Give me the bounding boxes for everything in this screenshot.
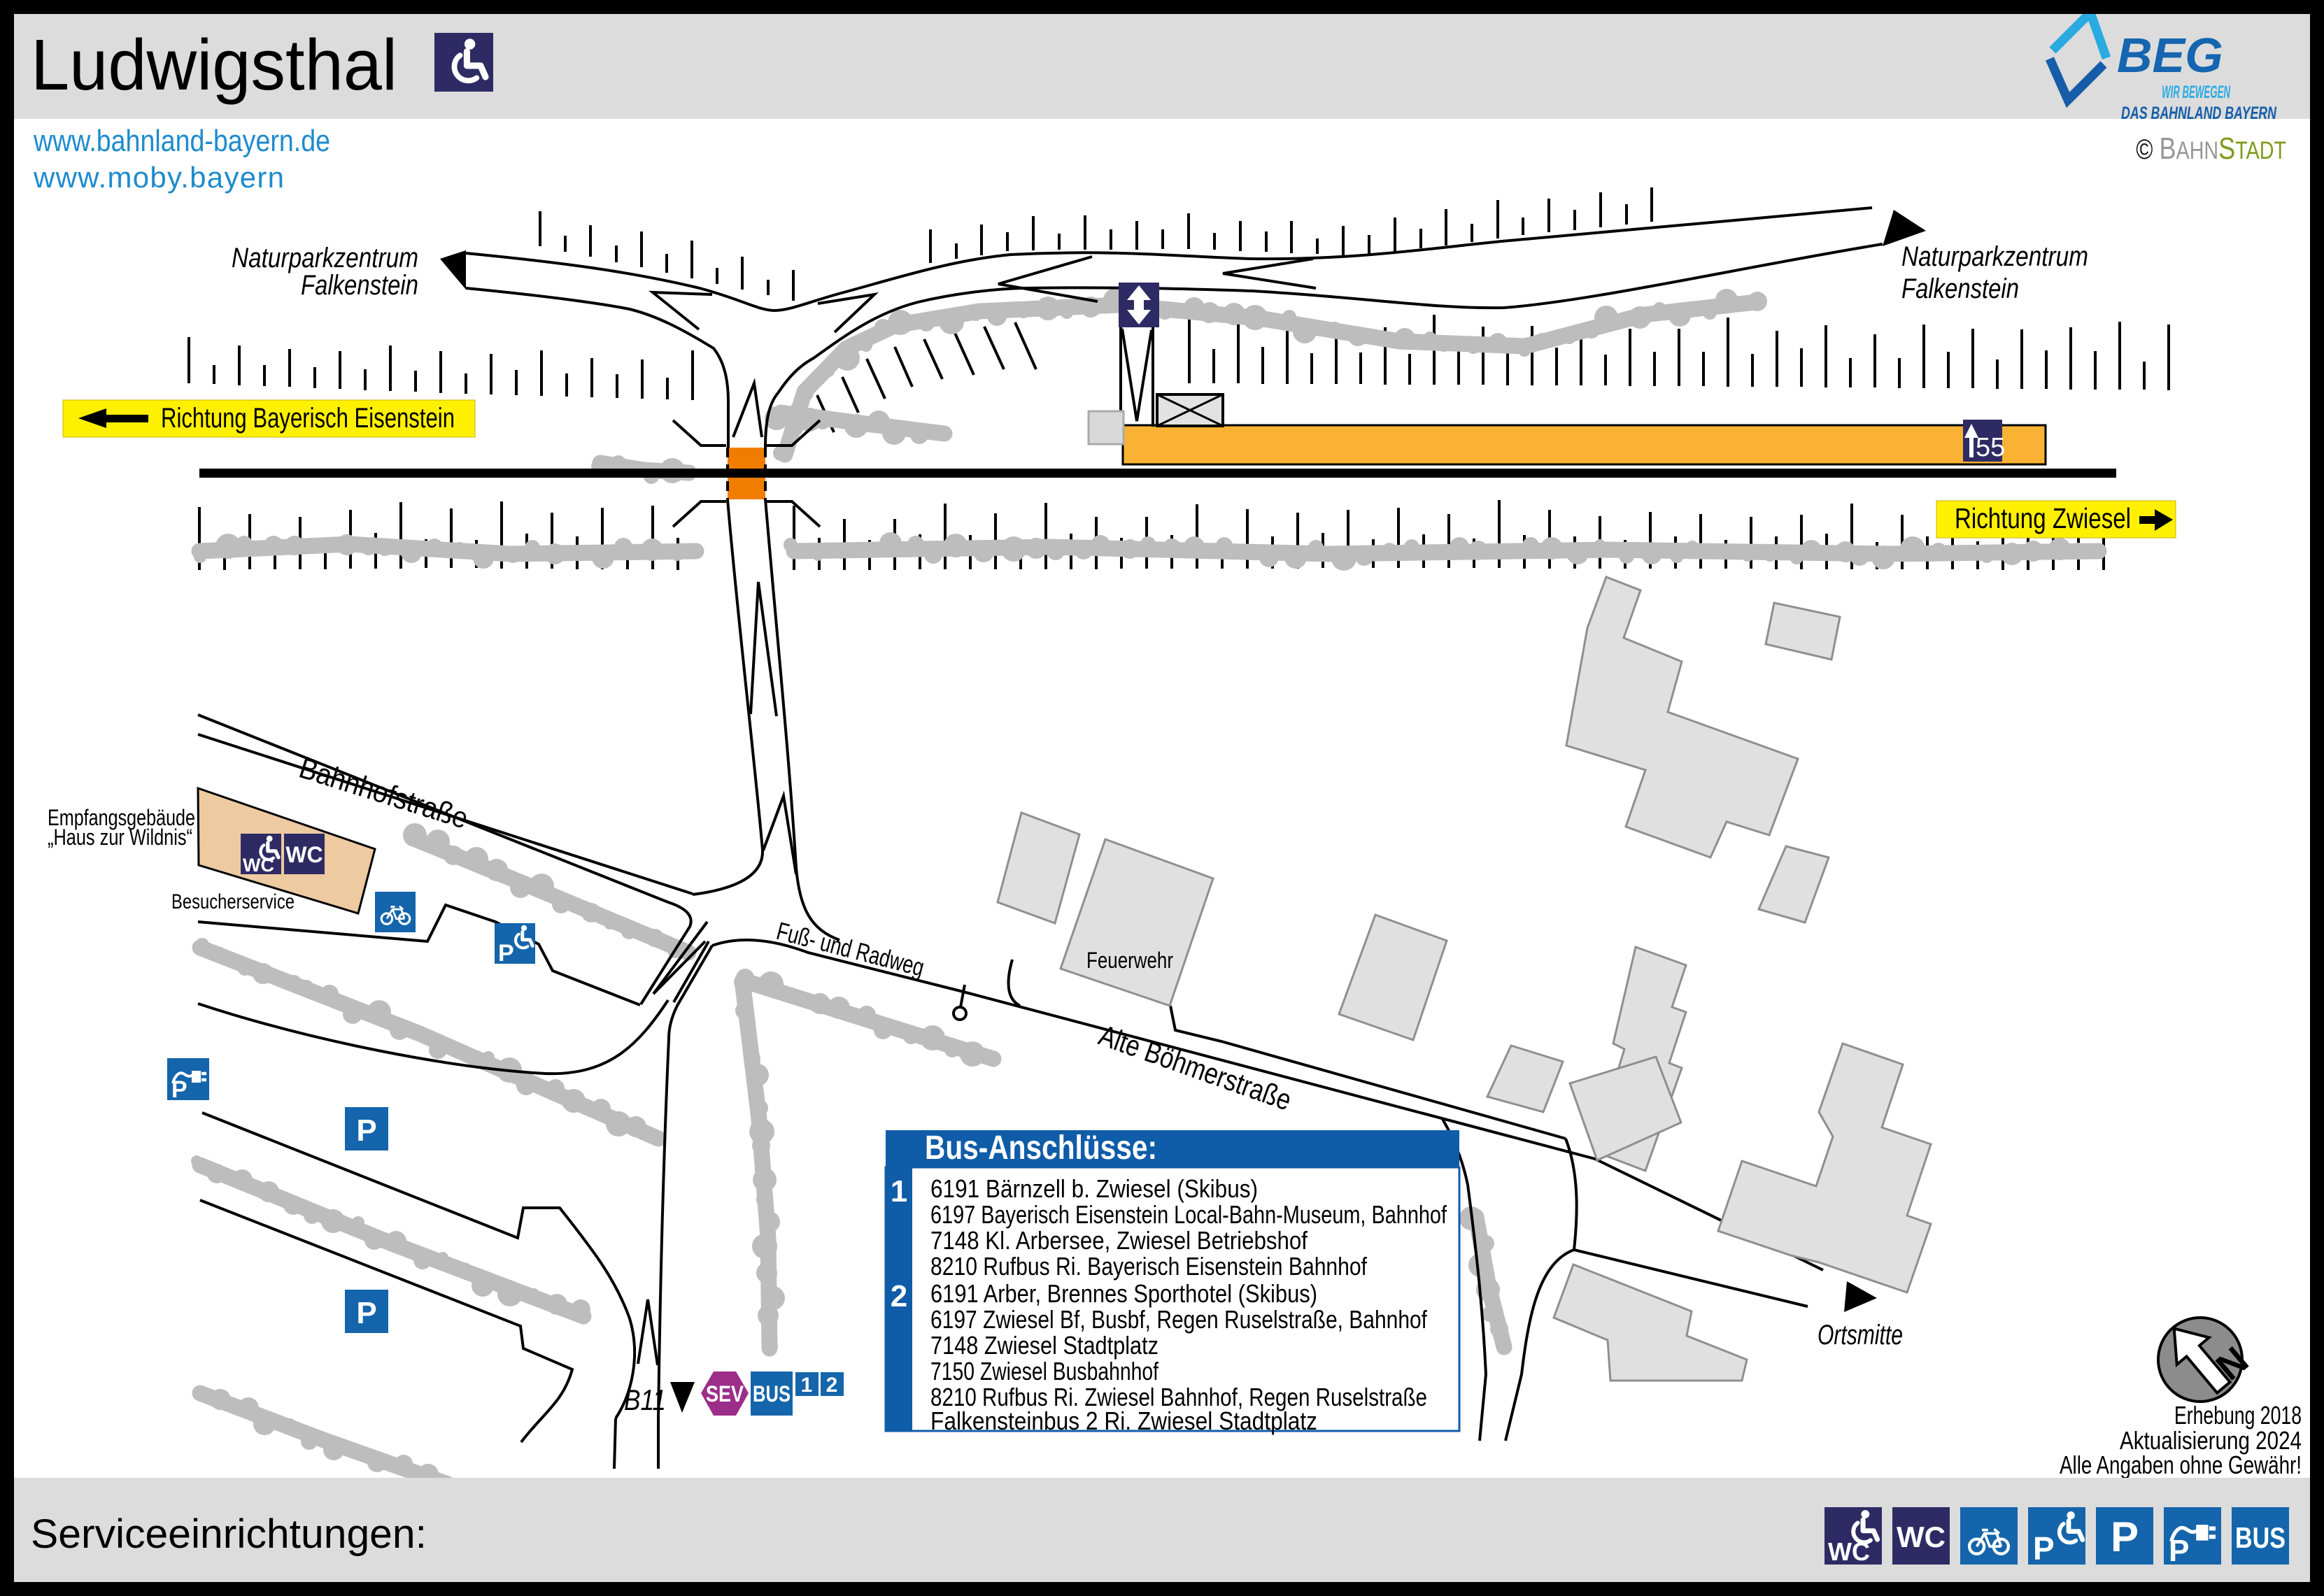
svg-text:WC: WC: [285, 842, 323, 867]
svg-text:BUS: BUS: [753, 1381, 791, 1406]
svg-text:WIR BEWEGEN: WIR BEWEGEN: [2162, 83, 2231, 102]
svg-text:BUS: BUS: [2235, 1521, 2286, 1554]
svg-text:P: P: [498, 940, 514, 967]
svg-text:8210 Rufbus Ri. Bayerisch Eise: 8210 Rufbus Ri. Bayerisch Eisenstein Bah…: [930, 1252, 1368, 1281]
svg-text:Falkensteinbus 2 Ri. Zwiesel S: Falkensteinbus 2 Ri. Zwiesel Stadtplatz: [930, 1406, 1317, 1435]
svg-text:www.bahnland-bayern.de: www.bahnland-bayern.de: [33, 124, 330, 158]
svg-text:www.moby.bayern: www.moby.bayern: [33, 161, 284, 194]
svg-text:© BAHNSTADT: © BAHNSTADT: [2136, 131, 2286, 166]
svg-text:2: 2: [891, 1279, 907, 1313]
svg-text:„Haus zur Wildnis“: „Haus zur Wildnis“: [48, 825, 192, 850]
svg-text:Alle Angaben ohne Gewähr!: Alle Angaben ohne Gewähr!: [2060, 1451, 2302, 1479]
svg-text:55: 55: [1976, 433, 2005, 462]
svg-text:P: P: [356, 1113, 376, 1148]
svg-text:Besucherservice: Besucherservice: [171, 890, 295, 913]
svg-text:B11: B11: [624, 1383, 666, 1416]
svg-text:Naturparkzentrum: Naturparkzentrum: [232, 243, 418, 273]
svg-text:WC: WC: [1897, 1520, 1946, 1553]
svg-text:1: 1: [891, 1174, 907, 1209]
svg-text:7148 Zwiesel Stadtplatz: 7148 Zwiesel Stadtplatz: [930, 1331, 1159, 1360]
svg-text:1: 1: [801, 1374, 813, 1397]
svg-text:P: P: [356, 1296, 376, 1330]
svg-text:2: 2: [826, 1374, 838, 1397]
svg-text:Serviceeinrichtungen:: Serviceeinrichtungen:: [31, 1511, 427, 1557]
svg-text:7150 Zwiesel Busbahnhof: 7150 Zwiesel Busbahnhof: [930, 1357, 1159, 1385]
svg-text:SEV: SEV: [706, 1381, 744, 1406]
svg-text:P: P: [2033, 1530, 2055, 1567]
svg-text:Ortsmitte: Ortsmitte: [1818, 1320, 1903, 1351]
svg-text:6197 Bayerisch Eisenstein Loca: 6197 Bayerisch Eisenstein Local-Bahn-Mus…: [930, 1200, 1447, 1229]
svg-text:6191 Bärnzell b. Zwiesel (Skib: 6191 Bärnzell b. Zwiesel (Skibus): [930, 1174, 1258, 1203]
svg-text:WC: WC: [1828, 1537, 1870, 1566]
svg-text:Feuerwehr: Feuerwehr: [1086, 948, 1173, 973]
svg-text:6191 Arber, Brennes Sporthotel: 6191 Arber, Brennes Sporthotel (Skibus): [930, 1279, 1317, 1308]
svg-text:Richtung Bayerisch Eisenstein: Richtung Bayerisch Eisenstein: [161, 403, 455, 434]
svg-text:WC: WC: [243, 855, 274, 876]
svg-text:7148 Kl. Arbersee, Zwiesel Bet: 7148 Kl. Arbersee, Zwiesel Betriebshof: [930, 1226, 1308, 1255]
svg-text:BEG: BEG: [2117, 28, 2223, 83]
svg-text:Falkenstein: Falkenstein: [301, 270, 418, 301]
svg-text:Richtung Zwiesel: Richtung Zwiesel: [1955, 502, 2131, 534]
svg-text:DAS BAHNLAND BAYERN: DAS BAHNLAND BAYERN: [2121, 104, 2277, 123]
svg-text:Bus-Anschlüsse:: Bus-Anschlüsse:: [925, 1130, 1157, 1167]
svg-text:Erhebung 2018: Erhebung 2018: [2174, 1401, 2302, 1430]
svg-text:P: P: [2111, 1513, 2139, 1560]
svg-text:Naturparkzentrum: Naturparkzentrum: [1901, 241, 2088, 272]
svg-text:Ludwigsthal: Ludwigsthal: [31, 24, 397, 105]
svg-text:6197 Zwiesel Bf, Busbf, Regen: 6197 Zwiesel Bf, Busbf, Regen Ruselstraß…: [930, 1305, 1428, 1334]
svg-text:Falkenstein: Falkenstein: [1901, 273, 2019, 304]
